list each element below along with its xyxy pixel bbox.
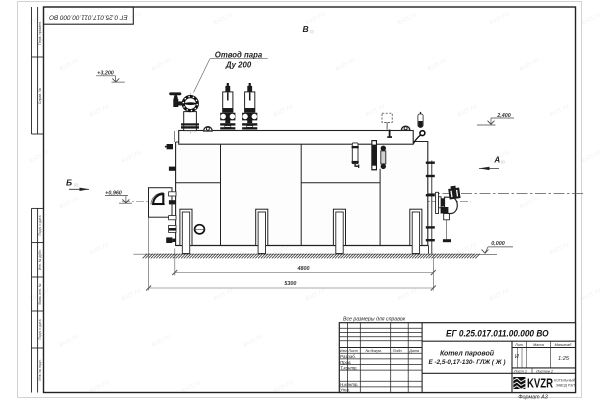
svg-text:(2): (2) [501, 160, 505, 164]
svg-text:Инв. № подл.: Инв. № подл. [38, 359, 42, 380]
svg-text:1:25: 1:25 [558, 356, 570, 362]
svg-text:Ду 200: Ду 200 [225, 60, 252, 69]
svg-text:КОТЕЛЬНЫЙ: КОТЕЛЬНЫЙ [554, 379, 575, 383]
svg-text:Т.контр.: Т.контр. [340, 365, 358, 370]
svg-text:4800: 4800 [297, 266, 310, 272]
svg-text:Масса: Масса [533, 343, 544, 347]
svg-text:Разраб.: Разраб. [340, 354, 356, 359]
svg-text:Инв. № дубл.: Инв. № дубл. [38, 249, 42, 270]
svg-text:ЕГ 0.25.017.011.00.000 ВО: ЕГ 0.25.017.011.00.000 ВО [49, 14, 128, 21]
svg-text:Подп.: Подп. [393, 349, 403, 353]
svg-text:Лит.: Лит. [514, 343, 523, 347]
svg-text:2,400: 2,400 [496, 113, 511, 119]
svg-text:ЕГ 0.25.017.011.00.000 ВО: ЕГ 0.25.017.011.00.000 ВО [446, 329, 549, 339]
svg-text:Справ. №: Справ. № [38, 88, 42, 104]
svg-text:Изм: Изм [340, 349, 347, 353]
svg-text:Формат А3: Формат А3 [518, 395, 548, 400]
svg-text:Пров.: Пров. [340, 360, 352, 365]
svg-text:А: А [493, 156, 500, 165]
svg-text:Лист: Лист [347, 349, 358, 353]
svg-text:0,000: 0,000 [491, 241, 505, 247]
svg-text:В: В [303, 24, 309, 34]
svg-text:Подп. и дата: Подп. и дата [38, 215, 42, 235]
svg-text:Котел паровой: Котел паровой [440, 350, 495, 358]
svg-text:Листов 2: Листов 2 [535, 369, 554, 373]
svg-text:Утв.: Утв. [340, 388, 350, 393]
svg-text:Н.контр.: Н.контр. [340, 382, 359, 387]
svg-text:(2): (2) [74, 183, 78, 187]
svg-text:(2): (2) [310, 30, 314, 34]
svg-text:№ докум.: № докум. [366, 349, 382, 353]
svg-text:Лист 1: Лист 1 [513, 369, 527, 373]
svg-text:Дата: Дата [408, 349, 419, 353]
svg-text:5300: 5300 [284, 281, 296, 287]
svg-text:Перв. примен.: Перв. примен. [38, 21, 42, 45]
svg-text:Все размеры для справок: Все размеры для справок [343, 317, 406, 323]
svg-text:ЗАВОД РЭП: ЗАВОД РЭП [556, 384, 576, 388]
svg-text:И: И [515, 354, 519, 360]
svg-text:Е -2,5-0,17-130- ГЛЖ ( Ж ): Е -2,5-0,17-130- ГЛЖ ( Ж ) [429, 359, 506, 366]
svg-text:Отвод пара: Отвод пара [215, 50, 263, 59]
svg-text:KVZR: KVZR [527, 376, 553, 391]
svg-text:+3,200: +3,200 [97, 71, 114, 77]
svg-text:+0,960: +0,960 [105, 190, 122, 196]
svg-text:Масштаб: Масштаб [555, 343, 573, 347]
svg-text:Б: Б [66, 177, 72, 187]
svg-text:Взам. инв. №: Взам. инв. № [38, 283, 42, 304]
svg-text:Подп. и дата: Подп. и дата [38, 319, 42, 339]
